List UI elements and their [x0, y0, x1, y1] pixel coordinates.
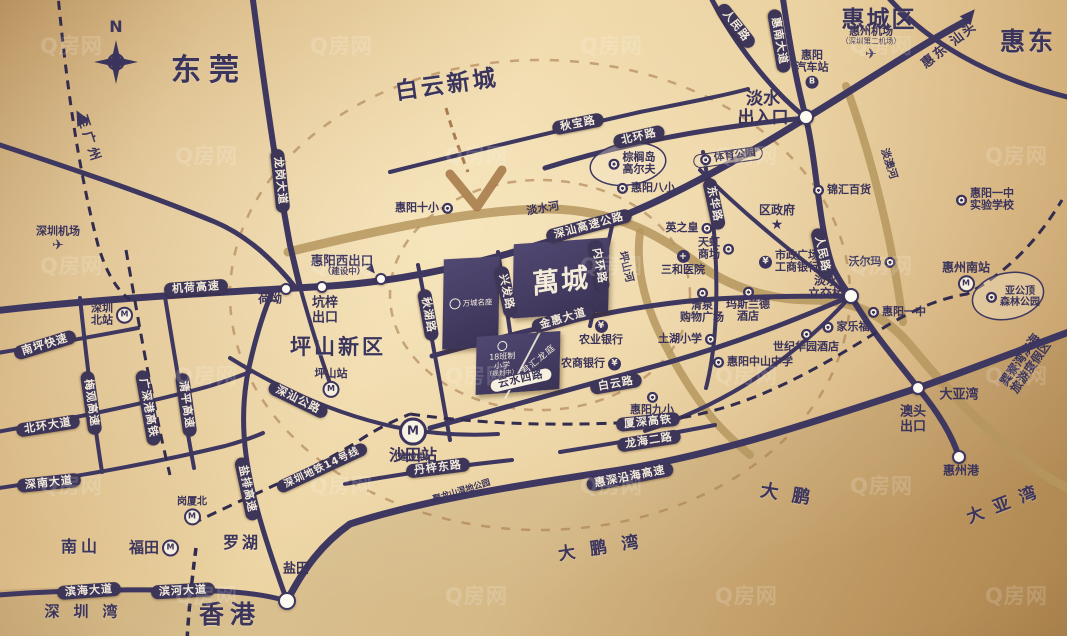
- poi-jinhui-department-store: 锦汇百货: [813, 184, 871, 196]
- label-nanshan: 南山: [61, 538, 101, 556]
- poi-century-huayuan-hotel-icon: [801, 329, 812, 340]
- junction-dot-5: [316, 281, 328, 293]
- label-huiyang-west-under-construction: （建设中）: [323, 268, 366, 278]
- label-aotou-exit: 澳头出口: [900, 405, 926, 434]
- poi-agricultural-bank: ¥农业银行: [579, 320, 623, 346]
- poi-district-government: 区政府★: [759, 204, 795, 234]
- junction-dot-6: [375, 273, 387, 285]
- poi-huiyang-zhongshan-middle-school-icon: [713, 357, 724, 368]
- poi-qingquan-shopping-plaza: 清泉购物广场: [680, 288, 724, 325]
- poi-futian: 福田M: [129, 540, 179, 557]
- road-qingping-expressway: 清平高速: [174, 372, 197, 437]
- label-pingshan-new-district: 坪山新区: [290, 336, 386, 360]
- poi-huiyang-no1-middle-school: 惠阳一中: [868, 306, 926, 318]
- poi-pingshan-station: 坪山站M: [315, 368, 348, 398]
- poi-district-government-icon: ★: [771, 218, 784, 234]
- road-shenshan-expressway: 深汕高速公路: [545, 208, 634, 245]
- poi-huiyang-bus-station: 惠阳汽车站B: [796, 50, 829, 89]
- road-renmin-road-north: 人民路: [714, 1, 757, 51]
- road-jihe-expressway: 机荷高速: [164, 279, 229, 298]
- arrow-huidong-shantou-icon: [960, 5, 980, 25]
- poi-municipal-plaza-icbc-icon: ¥: [759, 256, 772, 269]
- poi-pingshan-station-icon: M: [323, 381, 340, 398]
- poi-maslande-hotel-icon: [743, 287, 754, 298]
- label-baiyun-xincheng: 白云新城: [394, 66, 501, 106]
- poi-huiyang-zhongshan-middle-school: 惠阳中山中学: [713, 356, 793, 368]
- road-binhai-avenue: 滨海大道: [57, 582, 122, 601]
- poi-huiyang-no9-primary: 惠阳九小: [630, 392, 674, 416]
- poi-jinhui-department-store-icon: [813, 185, 824, 196]
- poi-huiyang-no10-primary-icon: [442, 203, 453, 214]
- poi-huiyang-no10-primary: 惠阳十小: [395, 202, 453, 214]
- poi-huizhou-airport-icon: ✈: [865, 47, 877, 63]
- poi-shenzhen-north-station-icon: M: [116, 307, 133, 324]
- junction-dot-0: [798, 109, 814, 125]
- map-labels-layer: N东莞白云新城惠城区惠东惠东 汕头至广州坪山新区南山罗湖盐田香港深圳湾大鹏大鹏湾…: [0, 0, 1067, 636]
- road-longgang-avenue: 龙岗大道: [270, 148, 291, 213]
- road-huishen-coastal-expressway: 惠深沿海高速: [585, 462, 674, 493]
- label-huidong-shantou: 惠东 汕头: [919, 20, 980, 72]
- poi-carrefour-icon: [823, 322, 834, 333]
- poi-huiyang-bus-station-icon: B: [806, 75, 819, 88]
- road-neihuan-road: 内环路: [587, 239, 610, 293]
- label-julongshan-wetland-park: 聚龙山湿地公园: [432, 479, 492, 506]
- road-beihuan-avenue: 北环大道: [15, 414, 80, 438]
- poi-maslande-hotel: 玛斯兰德酒店: [726, 287, 770, 324]
- poi-huiyang-no1-middle-school-icon: [868, 307, 879, 318]
- label-daya-bay-big: 大亚湾: [964, 480, 1049, 528]
- road-huinan-avenue: 惠南大道: [766, 8, 791, 74]
- poi-huizhou-south-station: 惠州南站M: [942, 261, 990, 292]
- poi-yagongding-forest-park: 亚公顶森林公园: [986, 286, 1040, 308]
- poi-gangxiabei-station: 岗厦北M: [177, 496, 207, 525]
- poi-huizhou-airport: 惠州机场（深圳第二机场）✈: [841, 25, 901, 62]
- label-danshui-entrance: 淡水出入口: [738, 90, 789, 128]
- label-yantian: 盐田: [283, 563, 309, 578]
- poi-palm-island-golf: 棕榈岛高尔夫: [609, 152, 656, 177]
- road-beihuan-road: 北环路: [612, 124, 666, 150]
- poi-sanhe-hospital-icon: +: [677, 250, 690, 263]
- poi-yingzhihuang-icon: [702, 223, 713, 234]
- label-daya-bay-junction: 大亚湾: [939, 389, 978, 404]
- road-qiubao-road: 秋宝路: [551, 112, 605, 136]
- label-kengzi-exit: 坑梓出口: [312, 296, 338, 325]
- poi-rural-commercial-bank: 农商银行¥: [561, 358, 621, 371]
- junction-dot-7: [952, 450, 966, 464]
- poi-sports-park: 体育公园: [692, 145, 763, 168]
- compass-n-label: N: [109, 18, 122, 36]
- poi-gangxiabei-station-icon: M: [184, 509, 201, 526]
- poi-tianhong-mall-icon: [723, 244, 734, 255]
- road-binhe-avenue: 滨河大道: [151, 582, 216, 600]
- poi-shatian-station-icon: M: [399, 418, 427, 446]
- label-shenzhen-bay: 深圳湾: [44, 604, 131, 621]
- label-huizhou-port: 惠州港: [943, 464, 979, 477]
- poi-yingzhihuang: 英之皇: [666, 222, 713, 234]
- junction-dot-3: [911, 381, 925, 395]
- poi-sports-park-icon: [700, 154, 712, 166]
- label-heao: 荷坳: [258, 292, 282, 305]
- road-meiguan-expressway: 梅观高速: [79, 370, 102, 435]
- label-dapeng: 大鹏: [759, 481, 825, 511]
- poi-huiyang-no8-primary: 惠阳八小: [617, 182, 675, 194]
- poi-tuhu-primary-school: 土湖小学: [658, 333, 716, 345]
- rail-shenzhen-metro-line14: 深圳地铁14号线: [275, 441, 369, 494]
- poi-shenzhen-north-station: 深圳北站M: [91, 303, 133, 328]
- poi-shenzhen-airport: 深圳机场✈: [36, 226, 80, 255]
- label-shatian-under-construction: （建设中）: [389, 453, 434, 463]
- label-danshui-interchange: 淡水立交桥: [808, 275, 844, 302]
- road-qiuhu-road: 秋湖路: [416, 288, 439, 342]
- map-page: { "map": { "title": "萬城区位图", "watermark"…: [0, 0, 1067, 636]
- junction-dot-2: [278, 592, 296, 610]
- poi-yagongding-forest-park-icon: [986, 292, 997, 303]
- label-dongguan: 东莞: [171, 54, 247, 88]
- poi-walmart-icon: [885, 257, 896, 268]
- poi-palm-island-golf-icon: [609, 159, 620, 170]
- poi-huizhou-south-station-icon: M: [957, 276, 974, 293]
- label-danao-river: 淡澳河: [878, 147, 899, 181]
- label-huidong: 惠东: [1000, 28, 1056, 56]
- poi-walmart: 沃尔玛: [849, 256, 896, 268]
- poi-huiyang-no1-experimental-school: 惠阳一中实验学校: [956, 188, 1014, 213]
- label-luohu: 罗湖: [223, 534, 261, 552]
- poi-huiyang-no9-primary-icon: [647, 392, 658, 403]
- label-pingshan-river: 坪山河: [615, 250, 634, 283]
- label-danshui-river: 淡水河: [526, 200, 561, 218]
- poi-futian-icon: M: [162, 540, 179, 557]
- label-hongkong: 香港: [199, 601, 261, 629]
- rail-guangshengang-hsr: 广深港高铁: [134, 369, 161, 446]
- road-xingfa-road: 兴发路: [494, 265, 519, 319]
- road-shennan-avenue: 深南大道: [16, 473, 81, 494]
- road-yunshui-4th-road: 云水四路: [488, 366, 553, 394]
- poi-huiyang-no1-experimental-school-icon: [956, 195, 967, 206]
- poi-qingquan-shopping-plaza-icon: [697, 288, 708, 299]
- poi-municipal-plaza-icbc: ¥市政广场工商银行: [759, 250, 819, 275]
- label-xunliao-bay-resort: 巽寮湾滨海旅游度假区: [998, 332, 1054, 397]
- road-longhai-2nd-road: 龙海二路: [616, 429, 681, 453]
- poi-shenzhen-airport-icon: ✈: [52, 239, 64, 255]
- poi-agricultural-bank-icon: ¥: [595, 320, 608, 333]
- label-huiyang-west-exit: 惠阳西出口: [311, 254, 374, 268]
- label-dapeng-bay: 大鹏湾: [557, 531, 655, 565]
- junction-dot-1: [843, 288, 859, 304]
- poi-rural-commercial-bank-icon: ¥: [608, 358, 621, 371]
- junction-dot-4: [280, 283, 292, 295]
- poi-sanhe-hospital: +三和医院: [661, 250, 705, 276]
- road-nanping-expressway: 南坪快速: [12, 329, 77, 361]
- road-yanpai-expressway: 盐排高速: [233, 456, 260, 522]
- poi-tuhu-primary-school-icon: [705, 334, 716, 345]
- poi-huiyang-no8-primary-icon: [617, 183, 628, 194]
- poi-carrefour: 家乐福: [823, 321, 870, 333]
